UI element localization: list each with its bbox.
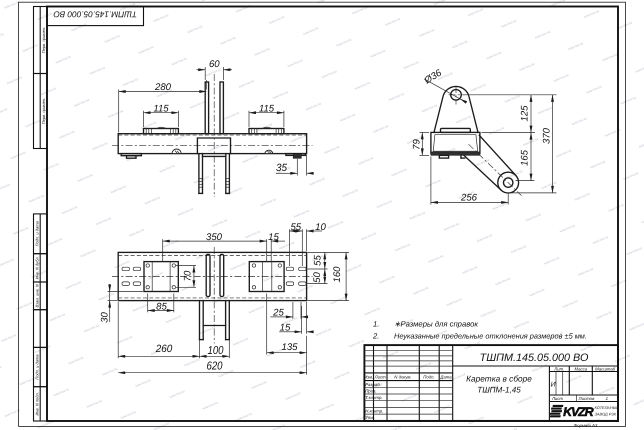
svg-text:30: 30 [100,312,111,323]
svg-text:350: 350 [206,232,223,243]
svg-text:260: 260 [155,343,173,355]
svg-text:Формат А3: Формат А3 [574,423,598,428]
svg-text:Дата: Дата [439,375,452,380]
svg-text:КОТЕЛЬНЫЙ: КОТЕЛЬНЫЙ [595,405,620,410]
svg-text:160: 160 [332,266,343,283]
svg-text:125: 125 [519,105,530,122]
svg-text:Инв. N дубл.: Инв. N дубл. [35,256,40,279]
svg-text:60: 60 [209,59,220,70]
svg-text:Подп. и дата: Подп. и дата [35,354,40,380]
svg-text:620: 620 [207,361,224,373]
svg-text:ЗАВОД РЗК: ЗАВОД РЗК [595,412,617,417]
svg-text:115: 115 [259,104,275,115]
svg-text:Перв. примен.: Перв. примен. [41,98,46,125]
svg-text:Лит.: Лит. [553,366,564,371]
svg-text:Листов: Листов [578,396,595,401]
svg-text:Т.контр.: Т.контр. [365,395,382,400]
svg-text:Н.контр.: Н.контр. [365,409,383,414]
svg-text:Разраб.: Разраб. [365,382,381,387]
svg-text:Неуказанные предельные отклоне: Неуказанные предельные отклонения размер… [394,332,587,341]
svg-text:10: 10 [315,222,326,233]
svg-text:∗Размеры для справок: ∗Размеры для справок [394,320,478,329]
svg-text:Перв. примен.: Перв. примен. [41,27,46,54]
svg-text:1.: 1. [373,320,379,329]
svg-text:50: 50 [312,272,323,283]
svg-text:Масса: Масса [574,366,587,371]
svg-text:Масштаб: Масштаб [595,366,616,371]
svg-text:79: 79 [412,139,423,150]
svg-text:Пров.: Пров. [365,389,376,394]
svg-text:N докум.: N докум. [394,375,411,380]
svg-text:Подп.: Подп. [423,375,434,380]
svg-text:15: 15 [280,322,291,333]
svg-text:15: 15 [268,232,279,243]
svg-text:Взам. инв. N: Взам. инв. N [35,284,40,307]
svg-text:165: 165 [519,149,530,166]
svg-text:25: 25 [272,307,284,318]
svg-text:Изм.: Изм. [364,375,373,380]
svg-text:280: 280 [154,82,172,93]
svg-text:ТШПМ-1,45: ТШПМ-1,45 [477,386,521,395]
svg-text:115: 115 [153,104,169,115]
svg-text:55: 55 [313,255,324,266]
svg-text:256: 256 [460,193,478,204]
svg-text:100: 100 [208,345,225,357]
svg-text:55: 55 [290,222,301,233]
svg-text:370: 370 [541,127,552,144]
svg-text:Подп. и дата: Подп. и дата [35,221,40,247]
svg-text:KVZR: KVZR [563,405,594,419]
svg-text:Лист: Лист [374,375,386,380]
svg-text:2.: 2. [372,332,379,341]
svg-text:Лист: Лист [551,396,563,401]
svg-text:ТШПМ.145.05.000 ВО: ТШПМ.145.05.000 ВО [480,352,589,364]
svg-text:ТШПМ.145.05.000 ВО: ТШПМ.145.05.000 ВО [53,10,137,20]
svg-text:35: 35 [276,162,287,174]
svg-text:Утв.: Утв. [365,415,375,420]
svg-text:135: 135 [281,342,298,353]
svg-text:70: 70 [183,270,194,281]
svg-text:Каретка в сборе: Каретка в сборе [466,374,532,384]
svg-text:Инв. N подл.: Инв. N подл. [35,392,40,415]
svg-text:85: 85 [156,301,167,312]
